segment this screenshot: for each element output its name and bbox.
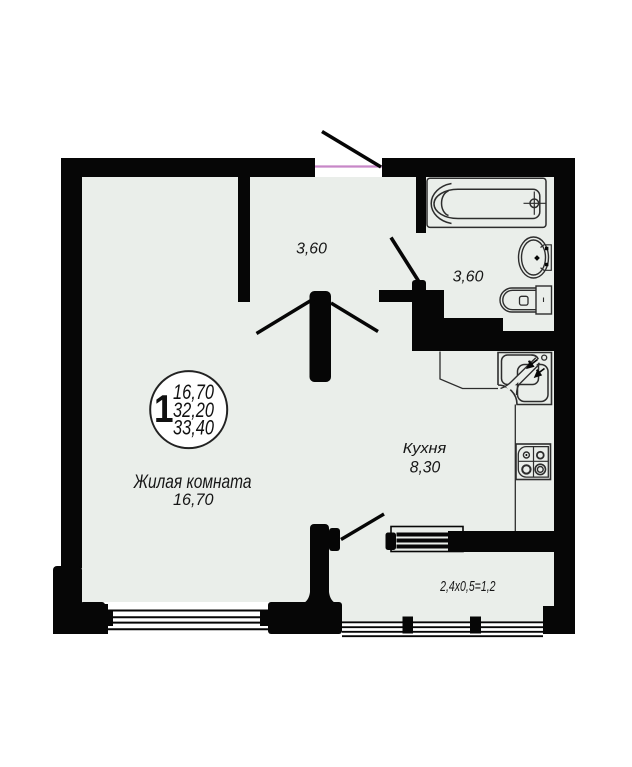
svg-text:3,60: 3,60 (453, 269, 484, 286)
svg-text:2,4x0,5=1,2: 2,4x0,5=1,2 (439, 578, 495, 594)
svg-text:Жилая комната: Жилая комната (133, 470, 252, 492)
svg-text:33,40: 33,40 (173, 416, 214, 439)
svg-text:16,70: 16,70 (173, 491, 213, 509)
svg-text:8,30: 8,30 (410, 459, 441, 476)
svg-text:1: 1 (154, 386, 174, 430)
svg-text:Кухня: Кухня (403, 441, 447, 457)
svg-text:3,60: 3,60 (296, 241, 327, 258)
